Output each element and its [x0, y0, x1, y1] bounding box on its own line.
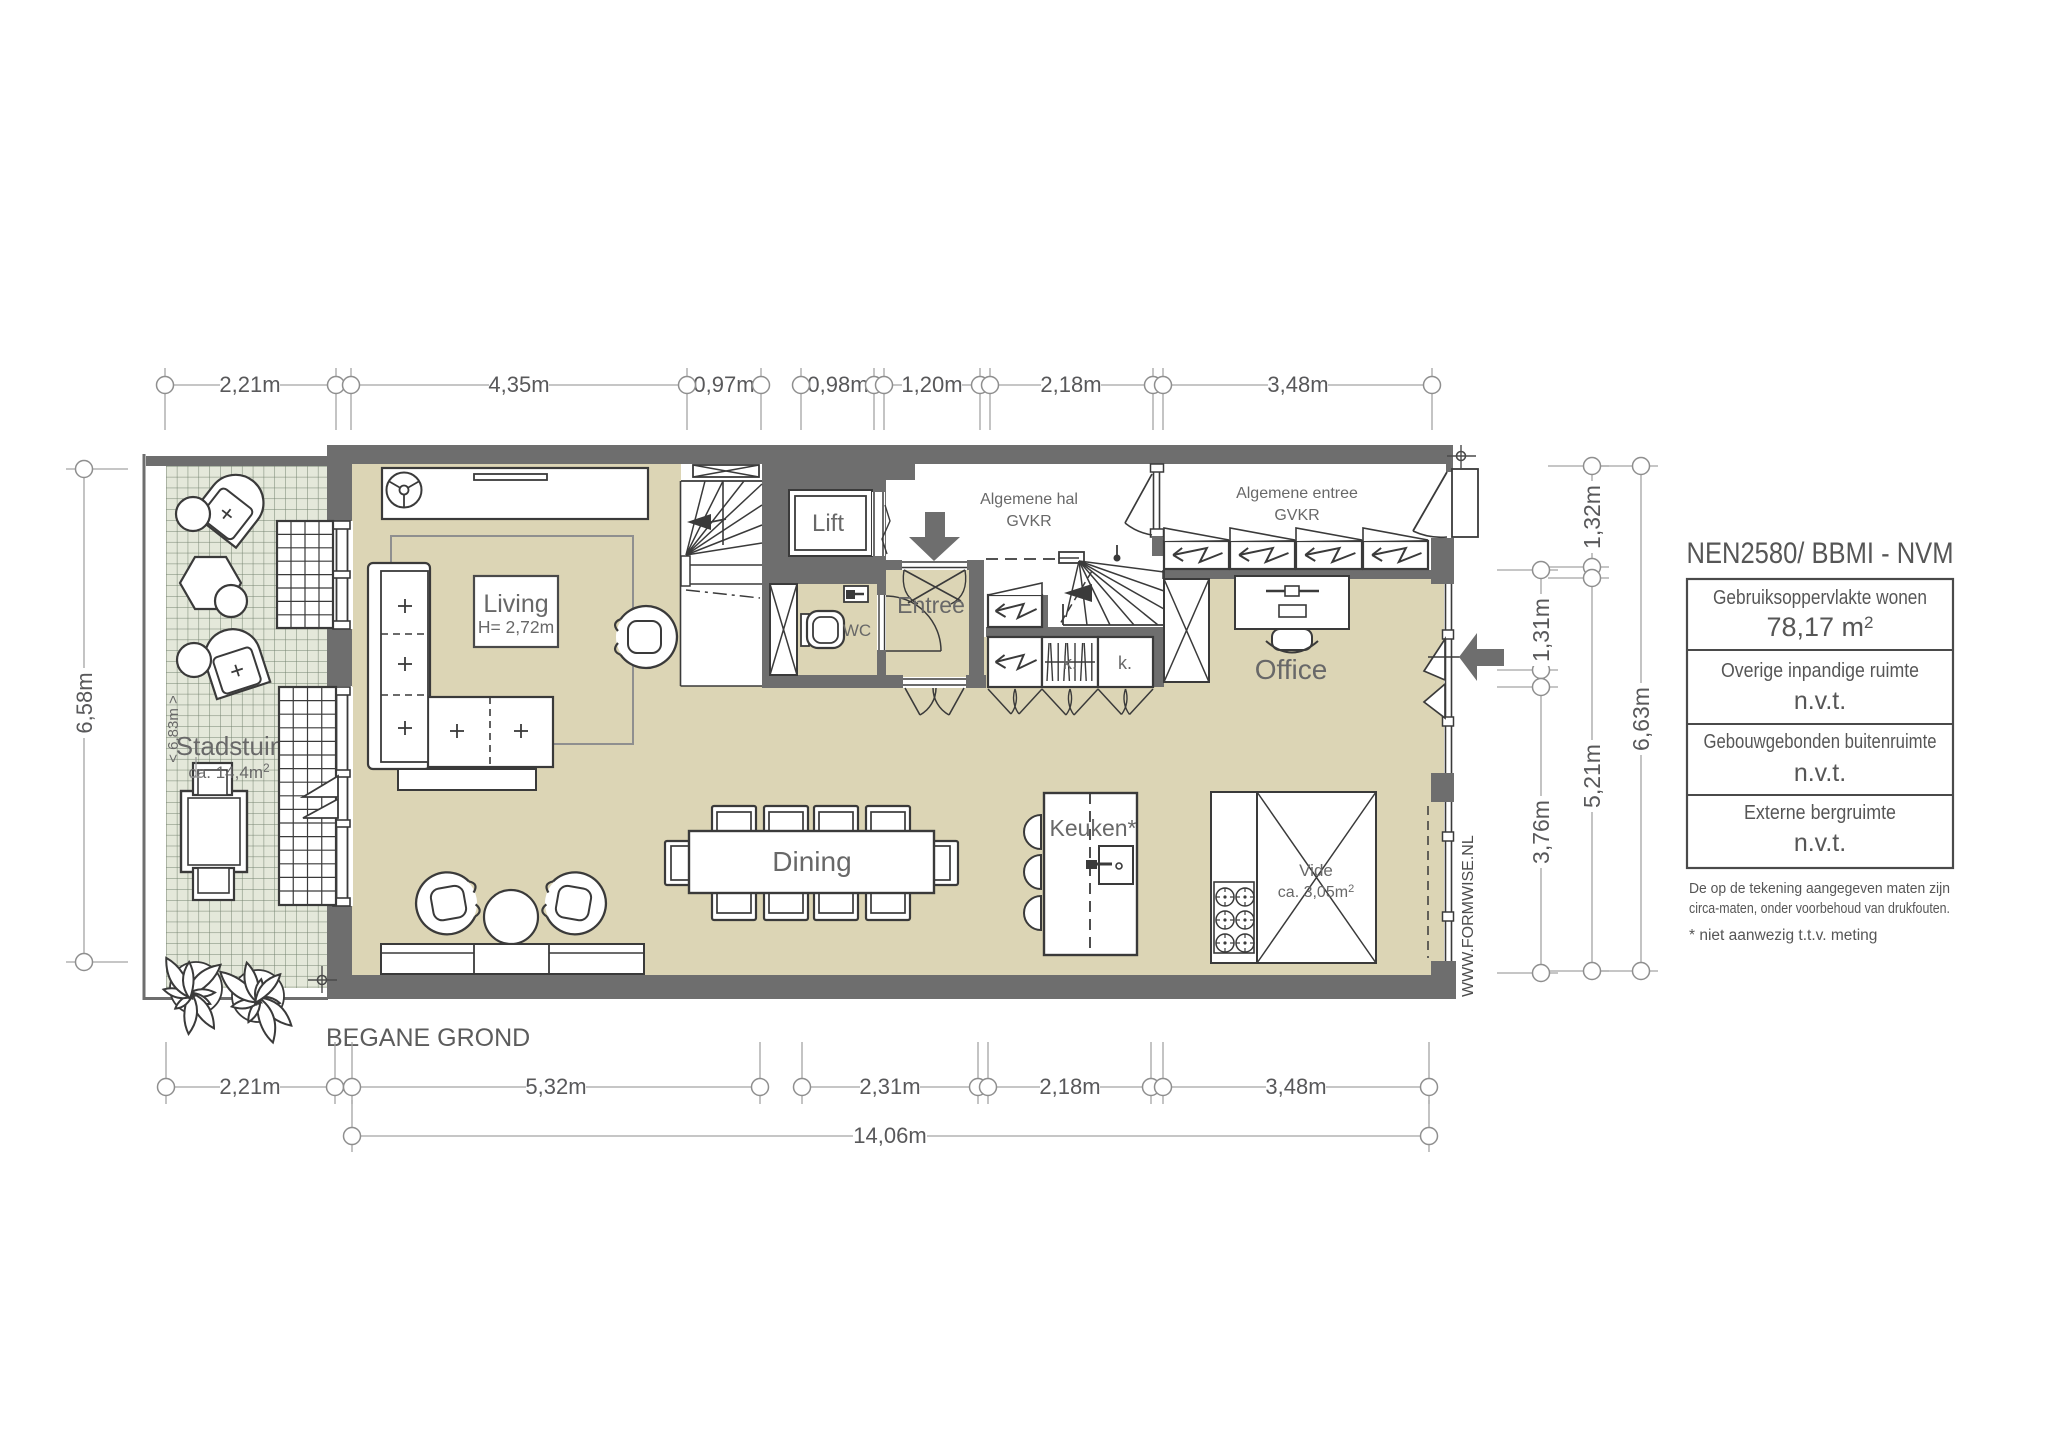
svg-text:NEN2580/ BBMI - NVM: NEN2580/ BBMI - NVM	[1687, 537, 1954, 570]
svg-text:Overige inpandige ruimte: Overige inpandige ruimte	[1721, 660, 1919, 682]
svg-text:1,32m: 1,32m	[1579, 485, 1605, 549]
svg-text:GVKR: GVKR	[1274, 507, 1319, 524]
svg-text:Vide: Vide	[1299, 861, 1333, 880]
svg-text:WWW.FORMWISE.NL: WWW.FORMWISE.NL	[1460, 835, 1477, 997]
svg-text:Stadstuin: Stadstuin	[176, 731, 284, 761]
svg-text:2,18m: 2,18m	[1040, 372, 1101, 397]
svg-text:n.v.t.: n.v.t.	[1794, 829, 1846, 857]
svg-text:Living: Living	[483, 590, 548, 618]
svg-text:ca. 14,4m2: ca. 14,4m2	[188, 761, 270, 782]
svg-text:5,21m: 5,21m	[1579, 744, 1605, 808]
svg-text:H= 2,72m: H= 2,72m	[478, 617, 554, 637]
svg-text:78,17 m2: 78,17 m2	[1766, 612, 1873, 642]
svg-text:GVKR: GVKR	[1006, 513, 1051, 530]
svg-text:2,18m: 2,18m	[1039, 1074, 1100, 1099]
svg-text:< 6,83m >: < 6,83m >	[165, 695, 182, 763]
svg-text:WC: WC	[843, 621, 871, 640]
svg-text:6,63m: 6,63m	[1628, 687, 1654, 751]
svg-text:0,98m: 0,98m	[807, 372, 868, 397]
svg-text:3,48m: 3,48m	[1267, 372, 1328, 397]
svg-text:circa-maten, onder voorbehoud: circa-maten, onder voorbehoud van drukfo…	[1689, 901, 1950, 917]
svg-text:Dining: Dining	[772, 846, 851, 877]
svg-text:De op de tekening aangegeven m: De op de tekening aangegeven maten zijn	[1689, 881, 1950, 897]
svg-text:2,21m: 2,21m	[219, 1074, 280, 1099]
svg-text:1,20m: 1,20m	[901, 372, 962, 397]
svg-text:2,21m: 2,21m	[219, 372, 280, 397]
svg-text:k.: k.	[1063, 653, 1077, 673]
svg-text:Lift: Lift	[812, 510, 844, 537]
svg-text:Gebruiksoppervlakte wonen: Gebruiksoppervlakte wonen	[1713, 587, 1927, 609]
svg-text:2,31m: 2,31m	[859, 1074, 920, 1099]
svg-text:Keuken*: Keuken*	[1050, 815, 1137, 841]
svg-text:* niet aanwezig t.t.v. meting: * niet aanwezig t.t.v. meting	[1689, 927, 1877, 944]
svg-text:BEGANE GROND: BEGANE GROND	[326, 1024, 530, 1052]
svg-text:1,31m: 1,31m	[1528, 598, 1554, 662]
svg-text:Algemene hal: Algemene hal	[980, 491, 1078, 508]
svg-text:ca. 3,05m2: ca. 3,05m2	[1278, 883, 1354, 901]
svg-text:Entree: Entree	[897, 592, 965, 618]
svg-text:Externe bergruimte: Externe bergruimte	[1744, 802, 1896, 824]
svg-text:5,32m: 5,32m	[525, 1074, 586, 1099]
svg-text:6,58m: 6,58m	[72, 672, 97, 733]
svg-text:3,48m: 3,48m	[1265, 1074, 1326, 1099]
svg-text:4,35m: 4,35m	[488, 372, 549, 397]
svg-text:3,76m: 3,76m	[1528, 800, 1554, 864]
svg-text:n.v.t.: n.v.t.	[1794, 687, 1846, 715]
svg-text:k.: k.	[1118, 653, 1132, 673]
svg-text:0,97m: 0,97m	[693, 372, 754, 397]
svg-text:Office: Office	[1255, 654, 1328, 685]
svg-text:Gebouwgebonden buitenruimte: Gebouwgebonden buitenruimte	[1704, 731, 1937, 753]
svg-text:n.v.t.: n.v.t.	[1794, 759, 1846, 787]
svg-text:Algemene entree: Algemene entree	[1236, 485, 1358, 502]
svg-text:14,06m: 14,06m	[853, 1123, 926, 1148]
